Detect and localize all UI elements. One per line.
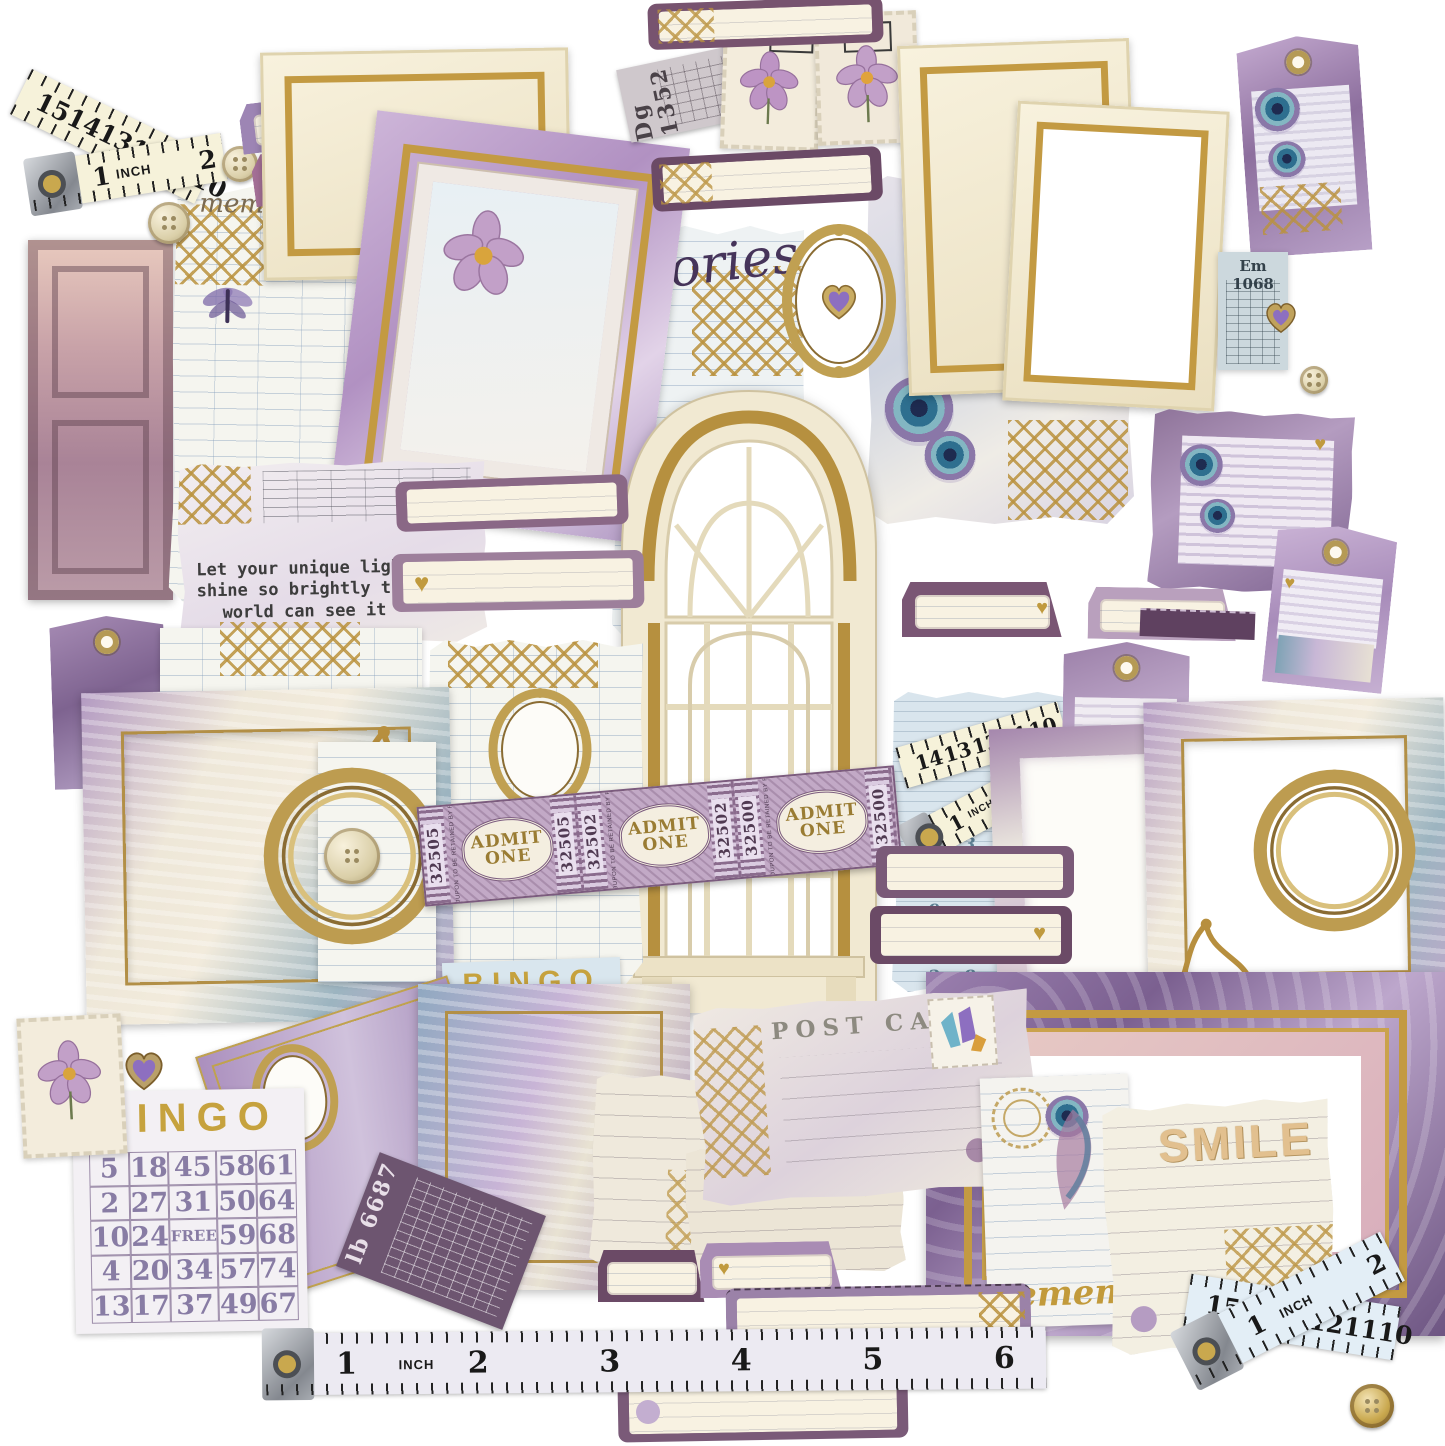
ticket-number: 32500: [868, 784, 891, 849]
orchid-icon: [29, 1026, 110, 1134]
heart-charm-icon: [1262, 298, 1300, 336]
gold-lattice-patch: [657, 8, 714, 44]
heart-icon: ♥: [414, 570, 430, 596]
cell: 61: [256, 1149, 296, 1184]
cell: 5: [89, 1152, 129, 1187]
admit-one-oval: ADMIT ONE: [774, 786, 871, 858]
cell: 45: [168, 1150, 217, 1185]
label-strip: [647, 0, 883, 50]
cell: 11: [1341, 1311, 1380, 1345]
label-strip-heart: ♥: [870, 906, 1072, 964]
gold-lattice-patch: [448, 640, 598, 688]
smile-word: SMILE: [1157, 1111, 1315, 1173]
dragonfly-icon: [195, 281, 260, 328]
quote-text: Let your unique light shine so brightly …: [196, 557, 412, 624]
cell: 6: [994, 1340, 1015, 1375]
quote-line: shine so brightly the: [196, 578, 411, 603]
admit-one-oval: ADMIT ONE: [616, 800, 713, 872]
cell: 27: [129, 1185, 169, 1220]
gold-lattice-patch: [1008, 420, 1128, 520]
cell: 59: [218, 1218, 258, 1253]
crystal-icon: [929, 997, 991, 1061]
cell: 57: [218, 1252, 258, 1287]
label-strip-heart: ♥: [392, 550, 645, 612]
orchid-card: [400, 182, 619, 473]
tape-metal-end: [262, 1328, 315, 1400]
frame-gold-band: [362, 144, 656, 511]
label-strip: [395, 474, 629, 532]
cell: 1: [91, 160, 113, 191]
door-panel: [52, 266, 149, 398]
ruler-numbers: 123456: [336, 1334, 1015, 1387]
cell: 24: [130, 1220, 170, 1255]
orchid-icon: [828, 33, 905, 136]
ink-dot: [1130, 1305, 1157, 1332]
heart-locket-icon: [817, 279, 861, 323]
cell: 74: [258, 1252, 298, 1287]
floral-tag: ♥: [1262, 520, 1398, 694]
window-graphic: [618, 385, 880, 1013]
arched-window: [618, 385, 880, 1013]
admit-word: ONE: [485, 847, 533, 868]
orchid-icon: [732, 39, 805, 137]
cell: 2: [197, 144, 219, 175]
cell: 10: [1376, 1316, 1415, 1350]
quote-line: world can see it: [197, 599, 412, 624]
label-strip: [651, 146, 884, 212]
gold-lattice-patch: [659, 162, 713, 205]
cell: 2: [468, 1345, 489, 1380]
tag-eyelet: [94, 630, 119, 655]
heart-icon: ♥: [1314, 434, 1327, 454]
cell: 10: [90, 1220, 130, 1255]
cell: 4: [731, 1343, 752, 1378]
tag-eyelet: [1285, 49, 1311, 75]
crystal-stamp: [927, 995, 998, 1069]
ticket-number: 32502: [581, 810, 604, 875]
ticket-number: 32505: [423, 823, 446, 888]
inch-label: INCH: [399, 1357, 435, 1372]
admit-word: ONE: [799, 820, 847, 841]
tag-eyelet: [1114, 656, 1138, 680]
cell: 2: [90, 1186, 130, 1221]
admit-one-oval: ADMIT ONE: [459, 813, 556, 885]
weathered-door: [28, 240, 173, 600]
gold-lattice-patch: [176, 463, 251, 524]
peacock-tag: [1236, 32, 1373, 258]
tab-label: [915, 595, 1049, 629]
gold-lattice-patch: [220, 622, 360, 676]
stitched-strip: [1140, 608, 1256, 640]
ticket-number: 32505: [554, 812, 577, 877]
cell: 37: [171, 1287, 220, 1322]
cell: 50: [217, 1184, 257, 1219]
cell: 68: [257, 1217, 297, 1252]
cell: 14: [912, 745, 945, 776]
round-frame-graphic: [1252, 768, 1417, 933]
label-strip: [876, 846, 1074, 898]
gold-round-frame: [1252, 768, 1417, 933]
ruler-bottom: 123456 INCH: [266, 1327, 1047, 1396]
label-area: [406, 482, 617, 523]
gold-cream-frame: [1002, 101, 1229, 412]
tag-eyelet: [1323, 539, 1349, 565]
admit-ticket: 32500 THIS COUPON TO BE RETAINED BY PATR…: [734, 768, 900, 877]
button: [1300, 366, 1328, 394]
admit-ticket: 32502 THIS COUPON TO BE RETAINED BY PATR…: [576, 781, 742, 890]
cell: 31: [169, 1184, 218, 1219]
cell: 49: [219, 1287, 259, 1322]
ticket-number: 32500: [738, 796, 761, 861]
cell: 1: [945, 809, 969, 837]
heart-icon: ♥: [1036, 598, 1048, 618]
admit-ticket: 32505 THIS COUPON TO BE RETAINED BY PATR…: [419, 795, 585, 904]
cell: 18: [129, 1151, 169, 1186]
gold-oval-frame: [780, 222, 898, 380]
heart-icon: ♥: [1033, 922, 1046, 944]
label-tab: [598, 1250, 710, 1302]
cell: 34: [170, 1253, 219, 1288]
cell: 5: [862, 1342, 883, 1377]
gold-foil-patch: [1260, 182, 1343, 235]
heart-icon: ♥: [1283, 573, 1296, 592]
label-tab-heart: ♥: [902, 582, 1070, 637]
orchid-icon: [432, 197, 535, 317]
cell: 13: [92, 1289, 132, 1324]
label-area: [629, 1386, 898, 1435]
admit-word: ONE: [642, 834, 690, 855]
label-area: [887, 854, 1063, 890]
gold-button: [1350, 1384, 1394, 1428]
orchid-stamp: [16, 1013, 127, 1158]
cell: 1: [1242, 1308, 1271, 1342]
cell: 58: [216, 1149, 256, 1184]
silver-ornate-frame: [382, 164, 636, 490]
bingo-grid: 5184558612273150641024FREE59684203457741…: [89, 1149, 291, 1324]
cell: FREE: [170, 1219, 219, 1254]
cell: 1: [336, 1346, 357, 1381]
cell: 20: [131, 1254, 171, 1289]
cell: 64: [256, 1183, 296, 1218]
ephemera-collage: memor MA the memories 151413121110 12 IN…: [0, 0, 1445, 1446]
gold-round-frame: [262, 766, 442, 946]
tape-metal-end: [23, 151, 83, 216]
cell: 13: [941, 737, 974, 768]
heart-icon: ♥: [718, 1259, 730, 1279]
frame-opening: [1023, 122, 1208, 391]
button-center: [324, 828, 380, 884]
cell: 3: [599, 1344, 620, 1379]
button: [148, 202, 190, 244]
cell: 2: [1362, 1247, 1391, 1281]
cell: 67: [258, 1286, 298, 1321]
label-area: [403, 558, 634, 604]
ticket-number: 32502: [711, 798, 734, 863]
peacock-eye: [924, 431, 976, 483]
cell: 4: [91, 1255, 131, 1290]
tab-label: [607, 1262, 697, 1294]
door-panel: [52, 420, 149, 574]
heart-charm-icon: [120, 1046, 168, 1094]
cell: 17: [131, 1288, 171, 1323]
